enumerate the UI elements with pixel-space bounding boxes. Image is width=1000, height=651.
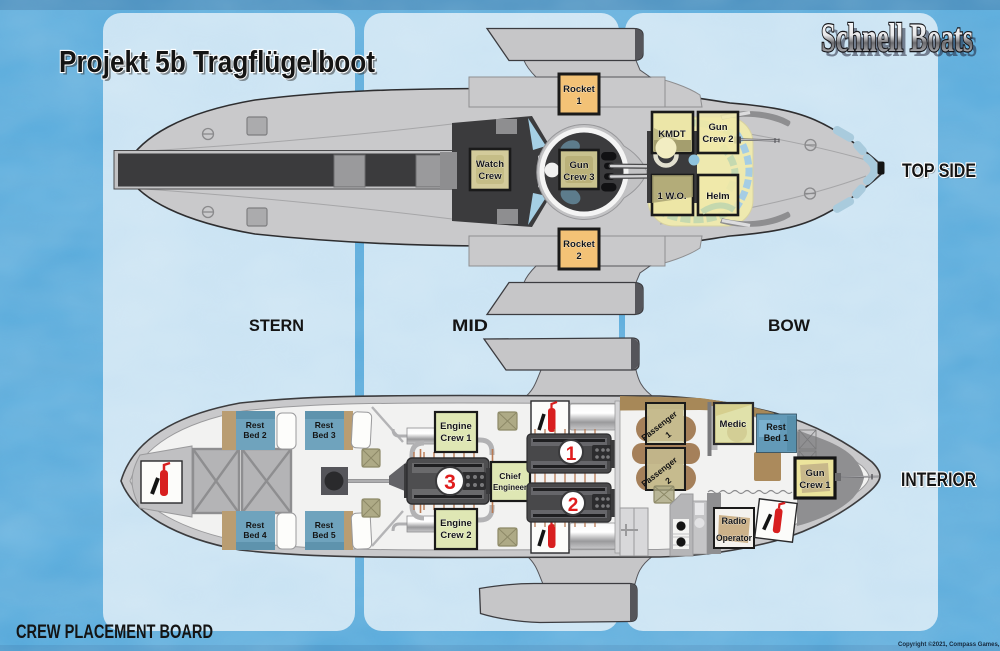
svg-text:Crew: Crew <box>478 171 502 182</box>
svg-text:1 W.O.: 1 W.O. <box>657 191 686 202</box>
svg-text:2: 2 <box>576 251 581 262</box>
svg-text:Bed 3: Bed 3 <box>312 430 335 440</box>
svg-text:Crew 3: Crew 3 <box>563 172 594 183</box>
svg-text:BOW: BOW <box>768 316 811 335</box>
svg-text:Bed 2: Bed 2 <box>243 430 266 440</box>
svg-text:2: 2 <box>568 495 579 516</box>
svg-text:Engine: Engine <box>440 421 472 432</box>
svg-text:Engineer: Engineer <box>493 482 528 492</box>
svg-text:Crew 2: Crew 2 <box>702 134 733 145</box>
svg-text:Engine: Engine <box>440 518 472 529</box>
svg-text:TOP SIDE: TOP SIDE <box>902 161 976 182</box>
svg-text:Crew 2: Crew 2 <box>440 530 471 541</box>
svg-text:Rocket: Rocket <box>563 239 596 250</box>
svg-text:Gun: Gun <box>806 468 825 479</box>
svg-text:Rocket: Rocket <box>563 84 596 95</box>
svg-text:Bed 1: Bed 1 <box>764 433 789 443</box>
svg-text:INTERIOR: INTERIOR <box>901 470 976 491</box>
svg-text:Chief: Chief <box>499 471 521 481</box>
svg-text:1: 1 <box>576 96 582 107</box>
svg-text:Gun: Gun <box>709 122 728 133</box>
svg-text:Rest: Rest <box>315 420 334 430</box>
svg-text:Schnell Boats: Schnell Boats <box>821 15 973 60</box>
svg-text:3: 3 <box>444 471 456 494</box>
svg-text:Rest: Rest <box>766 422 786 432</box>
svg-text:KMDT: KMDT <box>658 129 686 140</box>
svg-text:Gun: Gun <box>570 160 589 171</box>
svg-text:Watch: Watch <box>476 159 504 170</box>
svg-text:Helm: Helm <box>706 191 729 202</box>
svg-text:MID: MID <box>452 316 488 335</box>
svg-text:Crew 1: Crew 1 <box>799 480 831 491</box>
svg-text:Rest: Rest <box>246 420 265 430</box>
svg-text:STERN: STERN <box>249 316 304 335</box>
svg-text:Bed 5: Bed 5 <box>312 530 335 540</box>
svg-text:Radio: Radio <box>721 516 747 526</box>
svg-text:Projekt 5b Tragflügelboot: Projekt 5b Tragflügelboot <box>59 44 375 79</box>
svg-text:Crew 1: Crew 1 <box>440 433 472 444</box>
svg-text:CREW PLACEMENT BOARD: CREW PLACEMENT BOARD <box>16 622 213 643</box>
svg-text:Bed 4: Bed 4 <box>243 530 266 540</box>
svg-text:Rest: Rest <box>315 520 334 530</box>
svg-text:Medic: Medic <box>720 419 747 430</box>
svg-text:1: 1 <box>566 444 577 465</box>
svg-text:Rest: Rest <box>246 520 265 530</box>
svg-text:Operator: Operator <box>716 533 752 543</box>
svg-text:Copyright ©2021, Compass Games: Copyright ©2021, Compass Games, LLC <box>898 641 1000 648</box>
